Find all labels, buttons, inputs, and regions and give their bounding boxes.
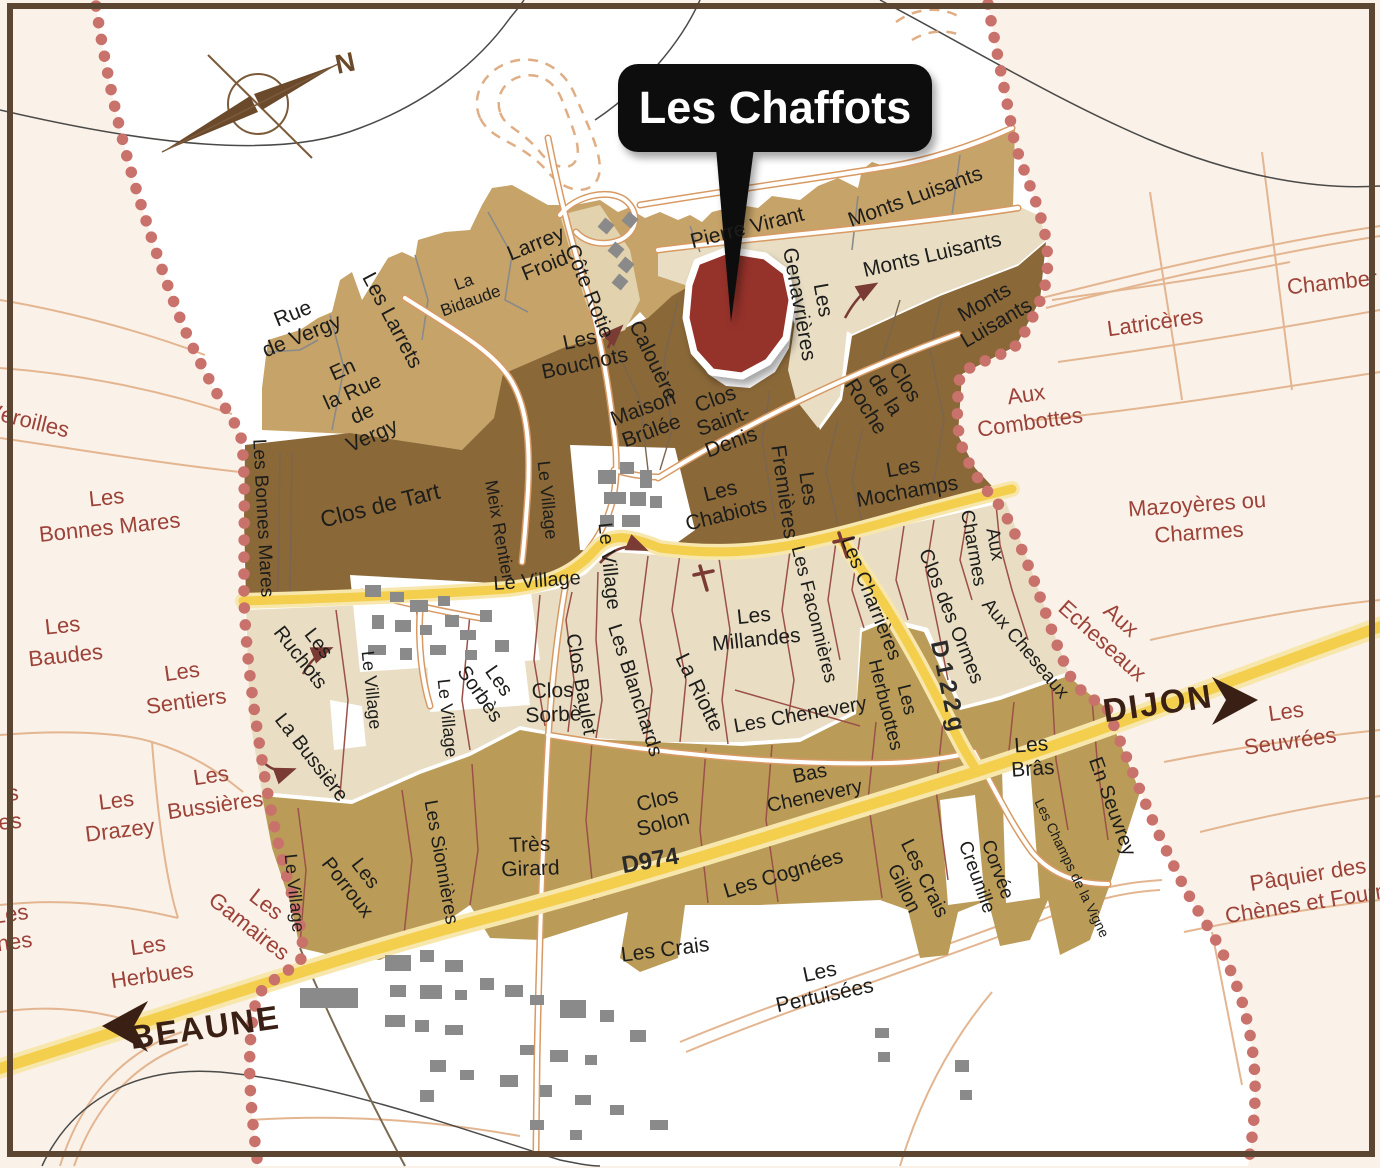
vineyard-map: Les Chaffots N VèroillesLesBonnes MaresL…	[0, 0, 1380, 1168]
map-canvas: Les Chaffots N VèroillesLesBonnes MaresL…	[0, 0, 1380, 1168]
callout-label: Les Chaffots	[639, 82, 912, 133]
